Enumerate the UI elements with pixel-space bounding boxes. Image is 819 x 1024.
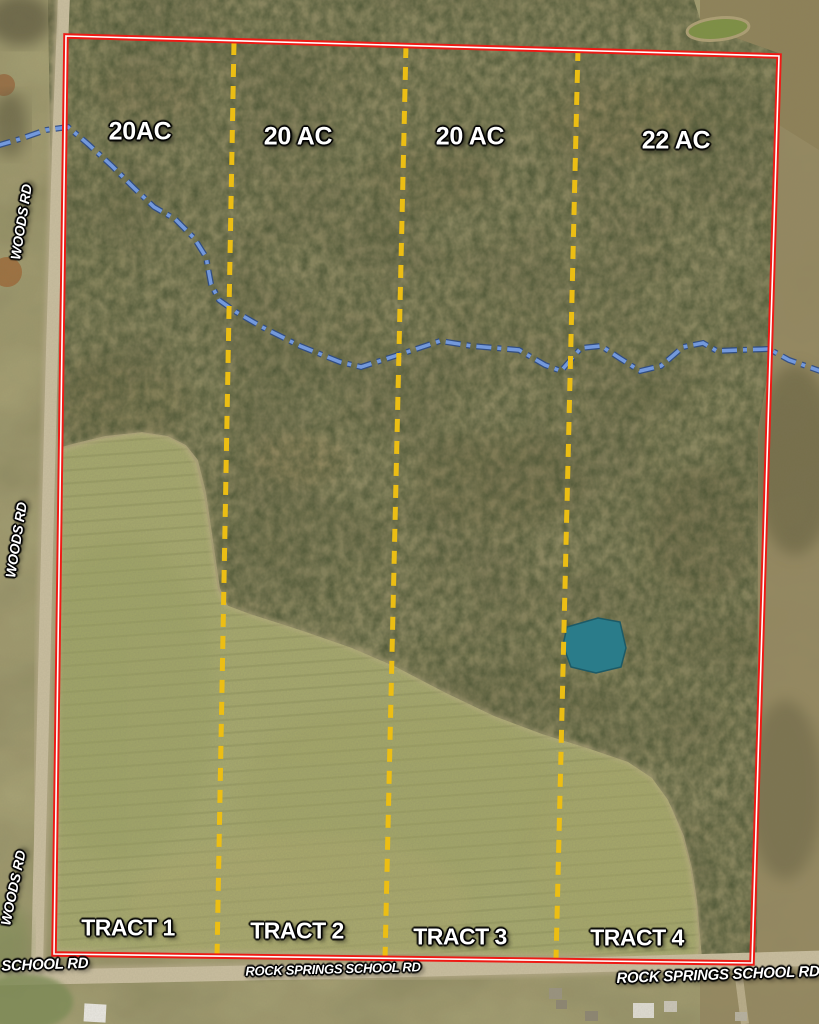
tract-label-4: TRACT 4 — [590, 927, 684, 950]
road-label-school-rd-left: S SCHOOL RD — [0, 956, 89, 975]
acreage-label-tract1: 20AC — [109, 120, 172, 145]
stock-pond — [563, 618, 626, 673]
acreage-label-tract3: 20 AC — [436, 125, 504, 150]
land-survey-map: 20AC 20 AC 20 AC 22 AC TRACT 1 TRACT 2 T… — [0, 0, 819, 1024]
tract-label-2: TRACT 2 — [250, 920, 344, 943]
acreage-label-tract2: 20 AC — [264, 125, 332, 150]
tract-label-1: TRACT 1 — [81, 917, 175, 940]
tract-label-3: TRACT 3 — [413, 926, 507, 949]
acreage-label-tract4: 22 AC — [642, 129, 710, 154]
